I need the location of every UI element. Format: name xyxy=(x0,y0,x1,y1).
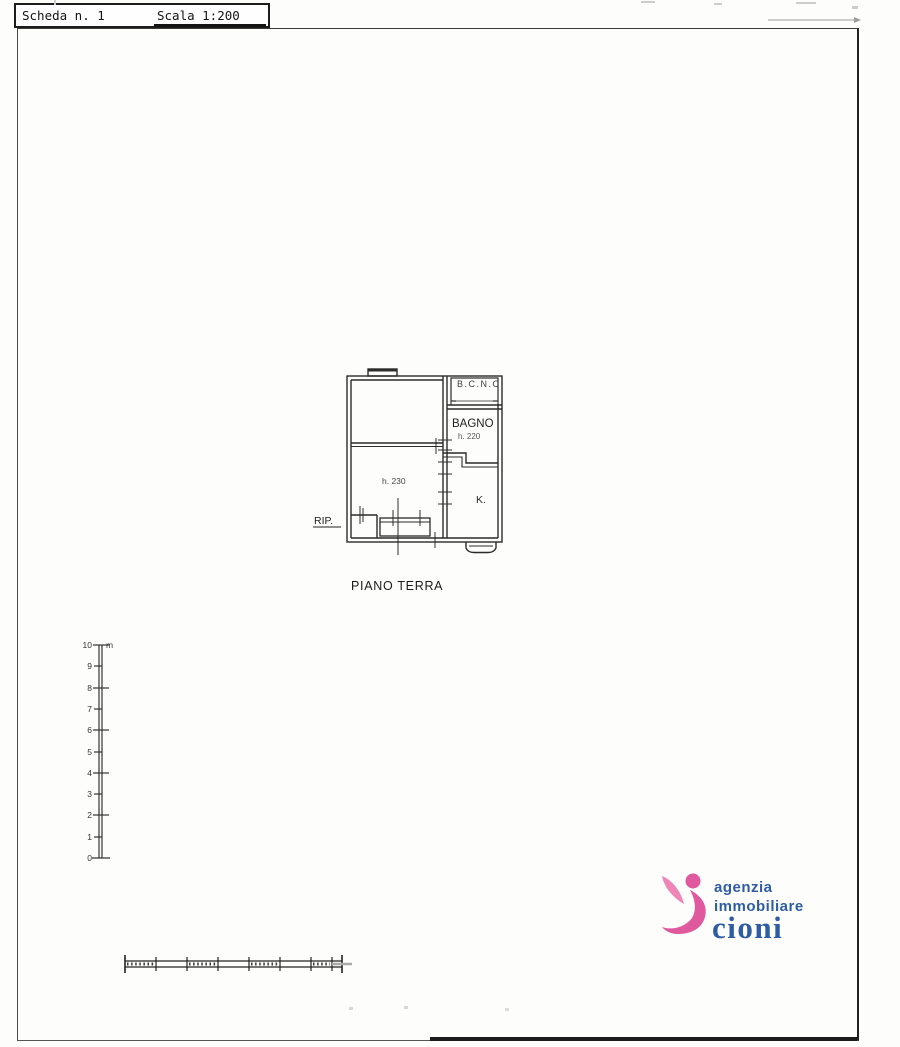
logo-body-shape xyxy=(662,890,706,934)
room-label-storage: RIP. xyxy=(314,515,333,527)
ruler-tick-label: 5 xyxy=(87,747,92,757)
ruler-tick-label: 3 xyxy=(87,789,92,799)
ruler-lines xyxy=(92,645,110,858)
ruler-tick-label: 9 xyxy=(87,661,92,671)
ruler-tick-label: 4 xyxy=(87,768,92,778)
room-label-bagno: BAGNO xyxy=(452,418,494,430)
bagno-height-label: h. 220 xyxy=(458,432,481,441)
logo-wing-shape xyxy=(662,876,684,904)
agency-logo: agenzia immobiliare cioni xyxy=(652,866,832,944)
main-room-height-label: h. 230 xyxy=(382,476,406,486)
scan-arrow-artifact xyxy=(768,14,862,26)
scale-label: Scala 1:200 xyxy=(157,8,240,23)
ruler-tick-label: 6 xyxy=(87,725,92,735)
scanned-sheet: Scheda n. 1 Scala 1:200 xyxy=(0,0,900,1047)
ruler-unit-label: m xyxy=(106,640,113,650)
room-label-kitchen: K. xyxy=(476,494,486,506)
ruler-tick-label: 8 xyxy=(87,683,92,693)
header-box: Scheda n. 1 Scala 1:200 xyxy=(14,3,270,28)
scheda-number-label: Scheda n. 1 xyxy=(22,8,105,23)
room-label-bcnc: B.C.N.C xyxy=(457,379,501,389)
scan-speck xyxy=(714,3,722,5)
logo-dot-shape xyxy=(686,874,701,889)
ruler-tick-label: 0 xyxy=(87,853,92,863)
scan-speck xyxy=(641,1,655,3)
vertical-scale-ruler: 10 9 8 7 6 5 4 3 2 1 0 m xyxy=(80,636,120,871)
floor-plan: B.C.N.C BAGNO h. 220 h. 230 K. RIP. xyxy=(300,362,540,567)
horizontal-scale-bar xyxy=(120,950,365,980)
ruler-tick-label: 7 xyxy=(87,704,92,714)
scan-speck xyxy=(54,0,56,5)
scan-speck xyxy=(852,6,858,9)
ruler-tick-label: 1 xyxy=(87,832,92,842)
floor-caption: PIANO TERRA xyxy=(351,579,443,593)
logo-text-cioni: cioni xyxy=(712,910,783,944)
ruler-tick-label: 10 xyxy=(83,640,93,650)
plan-walls xyxy=(347,369,502,553)
page-frame-bottom-edge xyxy=(430,1037,857,1041)
logo-mark xyxy=(662,874,706,935)
ruler-tick-label: 2 xyxy=(87,810,92,820)
logo-text-agenzia: agenzia xyxy=(714,879,773,896)
ruler-numbers: 10 9 8 7 6 5 4 3 2 1 0 xyxy=(83,640,93,863)
scan-speck xyxy=(796,2,816,4)
scale-bar-lines xyxy=(125,955,342,973)
scale-underline xyxy=(154,24,266,27)
